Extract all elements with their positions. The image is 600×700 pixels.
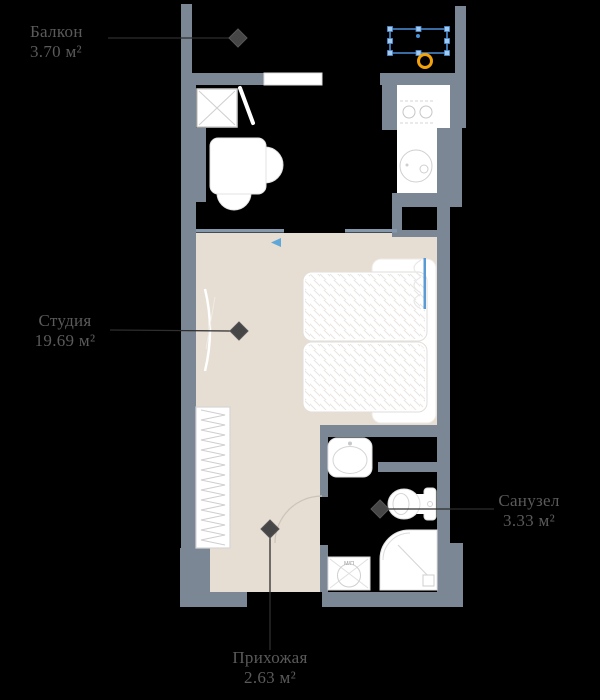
washing-machine-label: М/П bbox=[344, 561, 354, 567]
washing-machine-icon: М/П bbox=[328, 557, 370, 590]
room-area: 2.63 м² bbox=[220, 668, 320, 688]
bed-icon bbox=[303, 258, 436, 423]
bathtub-selected[interactable] bbox=[388, 27, 450, 56]
toilet-icon bbox=[388, 488, 436, 520]
kitchen-sink-icon bbox=[400, 150, 432, 182]
balcony-marker-icon bbox=[229, 29, 247, 47]
room-name: Балкон bbox=[30, 22, 114, 42]
door-leaf-icon bbox=[240, 88, 253, 123]
bed-accent-line bbox=[424, 258, 427, 309]
room-area: 3.70 м² bbox=[30, 42, 114, 62]
room-name: Санузел bbox=[490, 491, 568, 511]
room-area: 19.69 м² bbox=[20, 331, 110, 351]
closet-icon bbox=[196, 407, 230, 548]
selection-handles[interactable] bbox=[388, 27, 450, 56]
room-area: 3.33 м² bbox=[490, 511, 568, 531]
room-label-balcony: Балкон 3.70 м² bbox=[30, 22, 114, 62]
balcony-door-sill bbox=[264, 73, 322, 85]
bathroom-marker-icon bbox=[371, 500, 389, 518]
wardrobe-x-icon bbox=[197, 89, 237, 127]
room-label-studio: Студия 19.69 м² bbox=[20, 311, 110, 351]
table-chairs-icon bbox=[210, 138, 283, 210]
room-label-hallway: Прихожая 2.63 м² bbox=[220, 648, 320, 688]
wash-basin-icon bbox=[328, 438, 372, 477]
ring-highlight-icon bbox=[419, 55, 432, 68]
room-name: Прихожая bbox=[220, 648, 320, 668]
floor-plan-canvas: М/П Балкон 3.70 м² Студия 19.69 м² Сануз… bbox=[0, 0, 600, 700]
shower-icon bbox=[380, 530, 437, 590]
room-label-bathroom: Санузел 3.33 м² bbox=[490, 491, 568, 531]
room-name: Студия bbox=[20, 311, 110, 331]
